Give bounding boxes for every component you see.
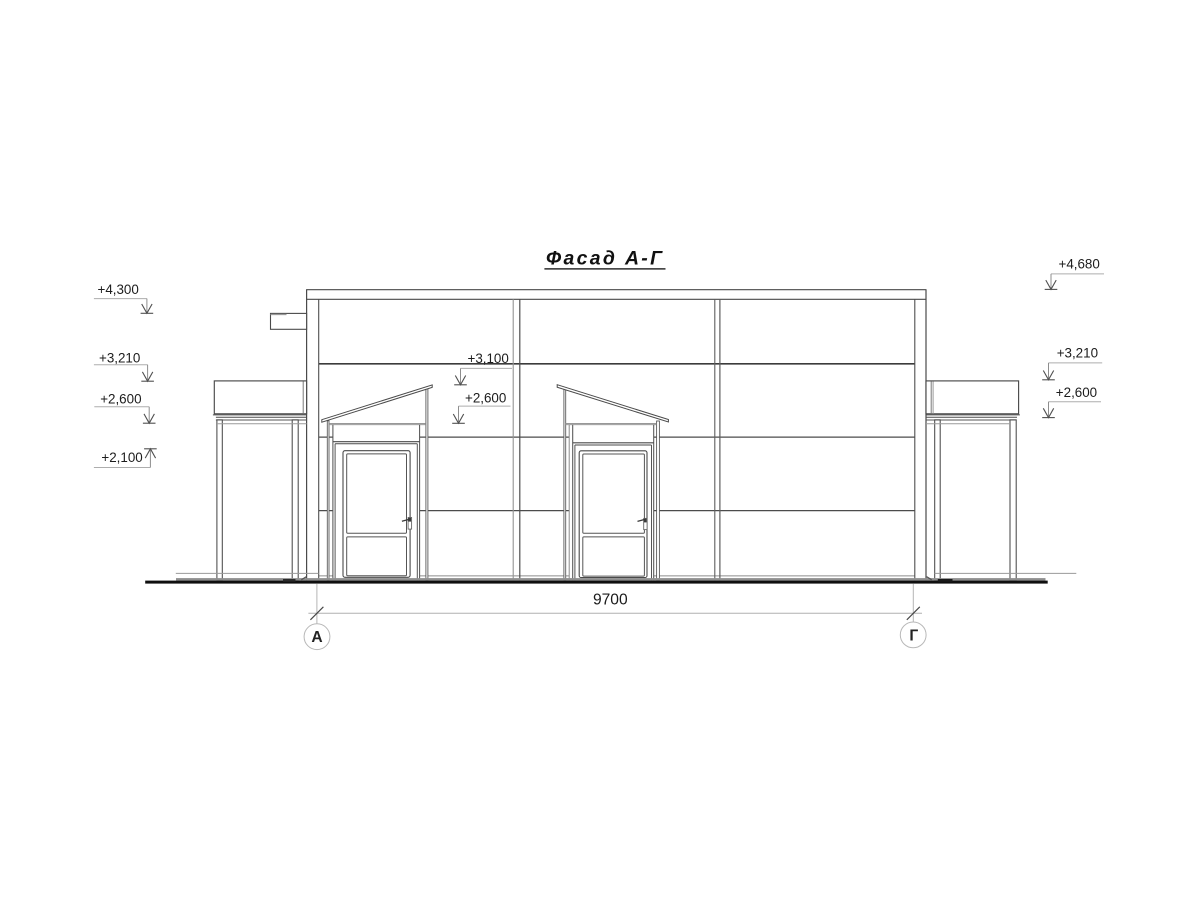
svg-text:+3,210: +3,210 [99, 351, 140, 366]
svg-text:+4,680: +4,680 [1059, 256, 1100, 271]
svg-text:+3,100: +3,100 [468, 351, 509, 366]
svg-text:+2,600: +2,600 [465, 390, 506, 405]
svg-text:Фасад А-Г: Фасад А-Г [546, 248, 663, 270]
svg-text:9700: 9700 [593, 592, 628, 609]
svg-text:+4,300: +4,300 [98, 282, 139, 297]
svg-text:А: А [311, 629, 322, 646]
svg-text:+2,600: +2,600 [1056, 385, 1097, 400]
svg-text:Г: Г [909, 627, 918, 644]
svg-text:+3,210: +3,210 [1057, 345, 1098, 360]
svg-text:+2,100: +2,100 [101, 450, 142, 465]
svg-text:+2,600: +2,600 [100, 392, 141, 407]
